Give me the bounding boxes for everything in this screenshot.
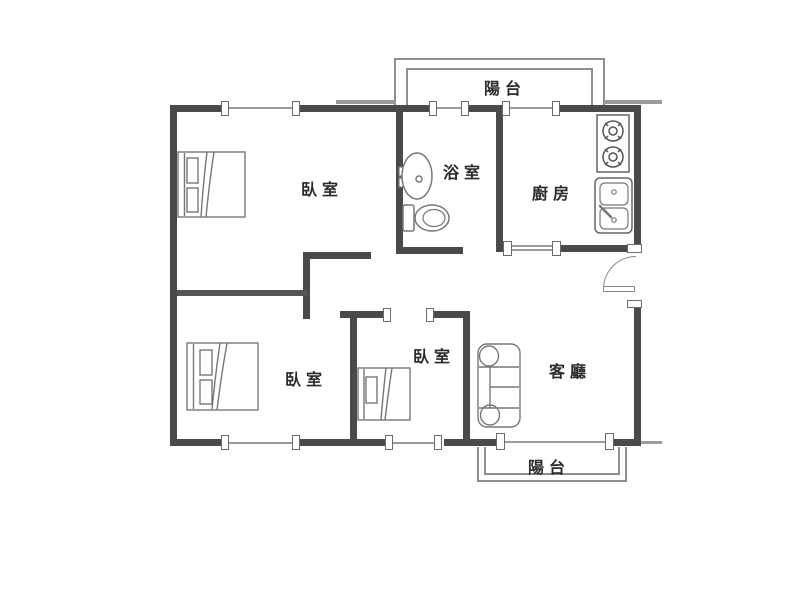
room-label-balcony-bottom: 陽台: [528, 454, 570, 478]
room-label-kitchen: 廚房: [532, 180, 574, 204]
room-label-bedroom-small: 臥室: [413, 343, 455, 367]
floor-plan: 陽台 臥室 浴室 廚房 臥室 臥室 客廳 陽台: [0, 0, 800, 592]
room-label-bedroom-master: 臥室: [301, 176, 343, 200]
single-bed: [358, 368, 410, 420]
double-bed: [178, 152, 245, 217]
fixtures-layer: [0, 0, 800, 592]
room-label-bedroom-second: 臥室: [285, 366, 327, 390]
toilet: [403, 205, 449, 231]
sofa: [478, 344, 520, 427]
room-label-bathroom: 浴室: [443, 159, 485, 183]
kitchen-sink-icon: [595, 178, 632, 233]
room-label-balcony-top: 陽台: [484, 75, 526, 99]
room-label-living-room: 客廳: [549, 358, 591, 382]
washbasin: [399, 153, 432, 199]
stove-icon: [597, 115, 629, 172]
double-bed: [187, 343, 258, 410]
